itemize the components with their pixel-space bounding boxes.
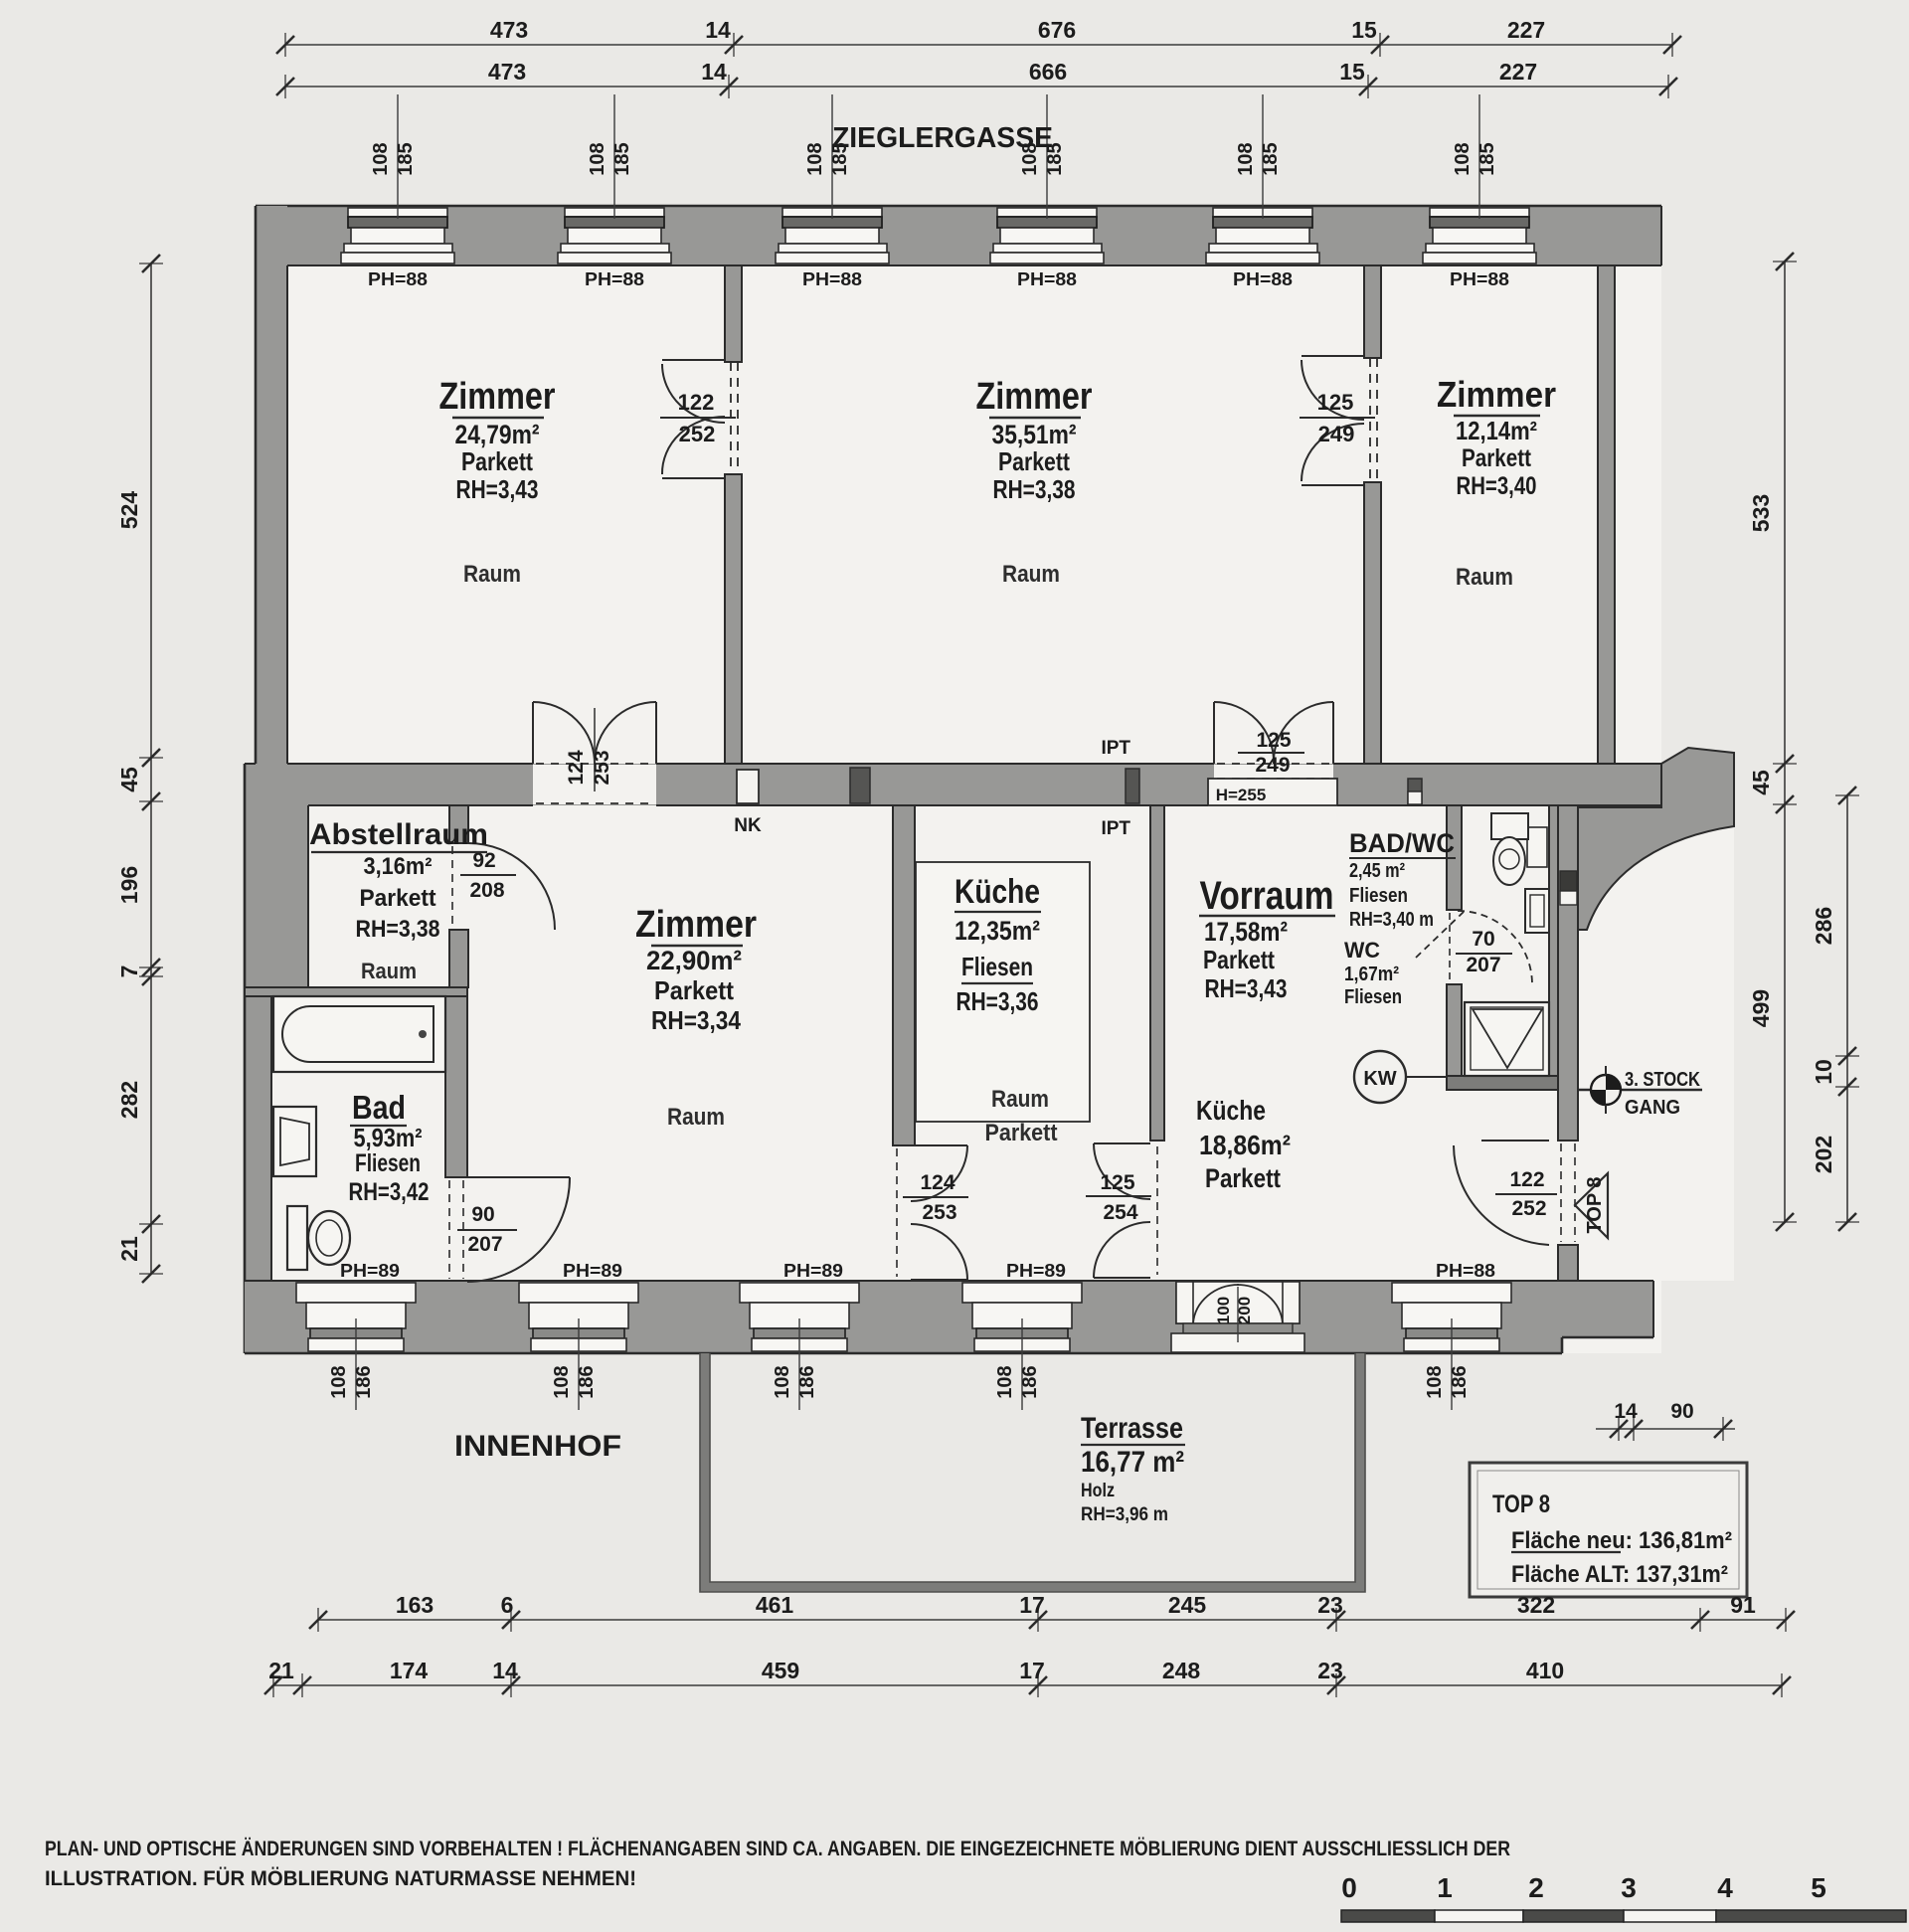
svg-text:10: 10 — [1811, 1059, 1836, 1085]
svg-text:Parkett: Parkett — [998, 446, 1070, 476]
svg-text:14: 14 — [492, 1658, 518, 1683]
svg-text:17: 17 — [1019, 1592, 1045, 1618]
svg-text:NK: NK — [734, 815, 762, 836]
svg-text:254: 254 — [1103, 1201, 1137, 1224]
svg-text:RH=3,34: RH=3,34 — [651, 1005, 741, 1035]
svg-text:GANG: GANG — [1625, 1097, 1680, 1119]
svg-text:185: 185 — [611, 142, 633, 175]
svg-text:Fliesen: Fliesen — [355, 1149, 421, 1177]
svg-text:Zimmer: Zimmer — [1437, 374, 1556, 415]
svg-text:125: 125 — [1100, 1171, 1134, 1194]
svg-text:2,45 m²: 2,45 m² — [1349, 860, 1405, 882]
svg-text:666: 666 — [1029, 59, 1067, 85]
svg-text:Raum: Raum — [1002, 561, 1060, 588]
svg-text:Parkett: Parkett — [654, 975, 734, 1005]
svg-text:108: 108 — [994, 1365, 1016, 1398]
svg-text:12,14m²: 12,14m² — [1456, 416, 1537, 445]
svg-text:459: 459 — [762, 1658, 799, 1683]
svg-text:196: 196 — [116, 866, 142, 904]
svg-text:125: 125 — [1317, 390, 1354, 415]
svg-text:18,86m²: 18,86m² — [1199, 1130, 1291, 1160]
svg-text:PH=89: PH=89 — [340, 1261, 400, 1281]
svg-text:22,90m²: 22,90m² — [646, 946, 742, 975]
svg-text:IPT: IPT — [1101, 738, 1130, 759]
svg-text:282: 282 — [116, 1081, 142, 1119]
svg-text:Fliesen: Fliesen — [961, 952, 1033, 981]
svg-text:3,16m²: 3,16m² — [364, 853, 433, 880]
svg-text:Fliesen: Fliesen — [1349, 885, 1408, 907]
svg-text:ILLUSTRATION. FÜR MÖBLIERUNG N: ILLUSTRATION. FÜR MÖBLIERUNG NATURMASSE … — [45, 1867, 636, 1890]
svg-text:PH=89: PH=89 — [563, 1261, 622, 1281]
svg-text:227: 227 — [1499, 59, 1537, 85]
svg-text:6: 6 — [501, 1592, 514, 1618]
svg-text:186: 186 — [1449, 1365, 1471, 1398]
svg-text:Zimmer: Zimmer — [635, 904, 757, 946]
svg-text:IPT: IPT — [1101, 818, 1130, 839]
svg-text:524: 524 — [116, 491, 142, 530]
svg-text:RH=3,38: RH=3,38 — [993, 474, 1076, 504]
svg-text:Parkett: Parkett — [1462, 444, 1532, 472]
svg-text:Parkett: Parkett — [461, 446, 533, 476]
svg-text:INNENHOF: INNENHOF — [454, 1430, 621, 1463]
svg-text:108: 108 — [804, 142, 826, 175]
svg-text:RH=3,40 m: RH=3,40 m — [1349, 909, 1434, 931]
svg-text:PH=88: PH=88 — [1233, 269, 1293, 289]
svg-text:108: 108 — [587, 142, 608, 175]
svg-text:45: 45 — [116, 767, 142, 792]
svg-text:174: 174 — [390, 1658, 429, 1683]
svg-text:4: 4 — [1717, 1872, 1733, 1903]
svg-text:12,35m²: 12,35m² — [954, 916, 1040, 946]
svg-text:Parkett: Parkett — [1203, 945, 1275, 974]
svg-text:461: 461 — [756, 1592, 794, 1618]
svg-text:14: 14 — [701, 59, 727, 85]
svg-text:1,67m²: 1,67m² — [1344, 964, 1399, 985]
svg-text:286: 286 — [1811, 907, 1836, 945]
svg-text:16,77 m²: 16,77 m² — [1081, 1446, 1184, 1479]
svg-text:PH=88: PH=88 — [585, 269, 644, 289]
svg-text:202: 202 — [1811, 1136, 1836, 1173]
svg-text:322: 322 — [1517, 1592, 1555, 1618]
svg-text:Parkett: Parkett — [360, 885, 436, 912]
svg-text:Fläche ALT: 137,31m²: Fläche ALT: 137,31m² — [1511, 1561, 1728, 1588]
svg-text:3. STOCK: 3. STOCK — [1625, 1069, 1700, 1091]
svg-text:5: 5 — [1811, 1872, 1826, 1903]
svg-text:7: 7 — [116, 966, 142, 978]
svg-text:Raum: Raum — [1456, 564, 1513, 591]
svg-text:245: 245 — [1168, 1592, 1207, 1618]
svg-text:H=255: H=255 — [1216, 786, 1267, 804]
svg-text:122: 122 — [1509, 1168, 1544, 1191]
svg-text:108: 108 — [1424, 1365, 1446, 1398]
svg-text:676: 676 — [1038, 17, 1076, 43]
svg-text:124: 124 — [565, 750, 588, 785]
svg-text:15: 15 — [1339, 59, 1365, 85]
svg-text:PH=88: PH=88 — [1450, 269, 1509, 289]
svg-text:TOP 8: TOP 8 — [1492, 1491, 1550, 1518]
svg-text:RH=3,43: RH=3,43 — [1205, 973, 1288, 1003]
svg-text:23: 23 — [1317, 1658, 1343, 1683]
svg-text:Raum: Raum — [361, 959, 417, 983]
svg-text:249: 249 — [1255, 754, 1290, 777]
svg-text:90: 90 — [471, 1203, 494, 1226]
svg-text:Raum: Raum — [463, 561, 521, 588]
svg-text:499: 499 — [1748, 989, 1774, 1027]
svg-text:RH=3,40: RH=3,40 — [1457, 472, 1537, 500]
svg-text:108: 108 — [1235, 142, 1257, 175]
svg-text:Parkett: Parkett — [985, 1120, 1058, 1146]
svg-text:TOP 8: TOP 8 — [1584, 1176, 1606, 1233]
svg-text:163: 163 — [396, 1592, 434, 1618]
svg-text:0: 0 — [1341, 1872, 1357, 1903]
svg-text:RH=3,96 m: RH=3,96 m — [1081, 1504, 1168, 1525]
svg-text:124: 124 — [920, 1171, 954, 1194]
svg-text:2: 2 — [1528, 1872, 1544, 1903]
svg-text:KW: KW — [1363, 1068, 1396, 1090]
svg-text:14: 14 — [1614, 1400, 1638, 1423]
svg-text:15: 15 — [1351, 17, 1377, 43]
svg-text:Küche: Küche — [954, 873, 1040, 911]
svg-text:Zimmer: Zimmer — [976, 376, 1093, 418]
svg-text:Fliesen: Fliesen — [1344, 986, 1402, 1008]
svg-text:208: 208 — [469, 879, 504, 902]
svg-text:108: 108 — [772, 1365, 793, 1398]
svg-text:122: 122 — [678, 390, 715, 415]
svg-text:125: 125 — [1256, 729, 1291, 752]
svg-text:Raum: Raum — [991, 1086, 1049, 1113]
svg-text:17: 17 — [1019, 1658, 1045, 1683]
svg-text:BAD/WC: BAD/WC — [1349, 828, 1455, 858]
svg-text:100: 100 — [1214, 1297, 1233, 1324]
svg-text:207: 207 — [467, 1233, 502, 1256]
svg-text:Zimmer: Zimmer — [439, 376, 556, 418]
svg-text:410: 410 — [1526, 1658, 1564, 1683]
svg-text:45: 45 — [1748, 770, 1774, 795]
svg-text:108: 108 — [370, 142, 392, 175]
svg-text:108: 108 — [1452, 142, 1474, 175]
svg-text:3: 3 — [1621, 1872, 1637, 1903]
svg-text:1: 1 — [1437, 1872, 1453, 1903]
svg-text:35,51m²: 35,51m² — [992, 420, 1077, 449]
svg-text:PH=88: PH=88 — [1017, 269, 1077, 289]
svg-text:252: 252 — [1511, 1197, 1546, 1220]
svg-text:253: 253 — [591, 750, 613, 785]
svg-text:186: 186 — [1019, 1365, 1041, 1398]
svg-text:ZIEGLERGASSE: ZIEGLERGASSE — [832, 122, 1053, 154]
svg-text:PH=88: PH=88 — [368, 269, 428, 289]
svg-text:186: 186 — [353, 1365, 375, 1398]
svg-text:21: 21 — [116, 1236, 142, 1262]
svg-text:RH=3,36: RH=3,36 — [956, 986, 1039, 1016]
svg-text:PH=89: PH=89 — [1006, 1261, 1066, 1281]
svg-text:252: 252 — [679, 422, 716, 446]
svg-text:533: 533 — [1748, 494, 1774, 532]
svg-text:Küche: Küche — [1196, 1095, 1266, 1126]
svg-text:Raum: Raum — [667, 1104, 725, 1131]
svg-text:Parkett: Parkett — [1205, 1163, 1281, 1193]
svg-text:Terrasse: Terrasse — [1081, 1412, 1183, 1445]
svg-text:185: 185 — [1260, 142, 1282, 175]
svg-text:70: 70 — [1472, 928, 1494, 951]
svg-text:WC: WC — [1344, 938, 1380, 963]
svg-text:17,58m²: 17,58m² — [1204, 917, 1288, 947]
svg-text:Holz: Holz — [1081, 1481, 1115, 1501]
svg-text:23: 23 — [1317, 1592, 1343, 1618]
svg-text:185: 185 — [1476, 142, 1498, 175]
svg-text:207: 207 — [1466, 954, 1500, 976]
svg-text:Bad: Bad — [352, 1089, 406, 1126]
svg-text:14: 14 — [705, 17, 731, 43]
svg-text:21: 21 — [268, 1658, 294, 1683]
svg-text:108: 108 — [551, 1365, 573, 1398]
svg-text:227: 227 — [1507, 17, 1545, 43]
svg-text:Abstellraum: Abstellraum — [309, 818, 488, 851]
svg-text:186: 186 — [576, 1365, 598, 1398]
svg-text:90: 90 — [1670, 1400, 1693, 1423]
svg-text:RH=3,43: RH=3,43 — [456, 474, 539, 504]
svg-text:PH=88: PH=88 — [1436, 1261, 1495, 1281]
svg-text:249: 249 — [1318, 422, 1355, 446]
svg-text:5,93m²: 5,93m² — [354, 1123, 423, 1152]
svg-text:185: 185 — [395, 142, 417, 175]
svg-text:RH=3,38: RH=3,38 — [356, 916, 440, 943]
svg-text:Vorraum: Vorraum — [1200, 874, 1334, 918]
svg-text:248: 248 — [1162, 1658, 1201, 1683]
svg-text:Fläche neu: 136,81m²: Fläche neu: 136,81m² — [1511, 1527, 1732, 1554]
svg-text:PH=88: PH=88 — [802, 269, 862, 289]
svg-text:PH=89: PH=89 — [783, 1261, 843, 1281]
svg-text:91: 91 — [1730, 1592, 1756, 1618]
svg-text:PLAN- UND OPTISCHE ÄNDERUNGEN: PLAN- UND OPTISCHE ÄNDERUNGEN SIND VORBE… — [45, 1838, 1510, 1860]
svg-text:108: 108 — [328, 1365, 350, 1398]
svg-text:253: 253 — [922, 1201, 956, 1224]
svg-text:RH=3,42: RH=3,42 — [349, 1178, 430, 1206]
svg-text:186: 186 — [796, 1365, 818, 1398]
svg-text:24,79m²: 24,79m² — [455, 420, 540, 449]
svg-text:473: 473 — [488, 59, 526, 85]
svg-text:473: 473 — [490, 17, 528, 43]
svg-text:200: 200 — [1235, 1297, 1254, 1324]
